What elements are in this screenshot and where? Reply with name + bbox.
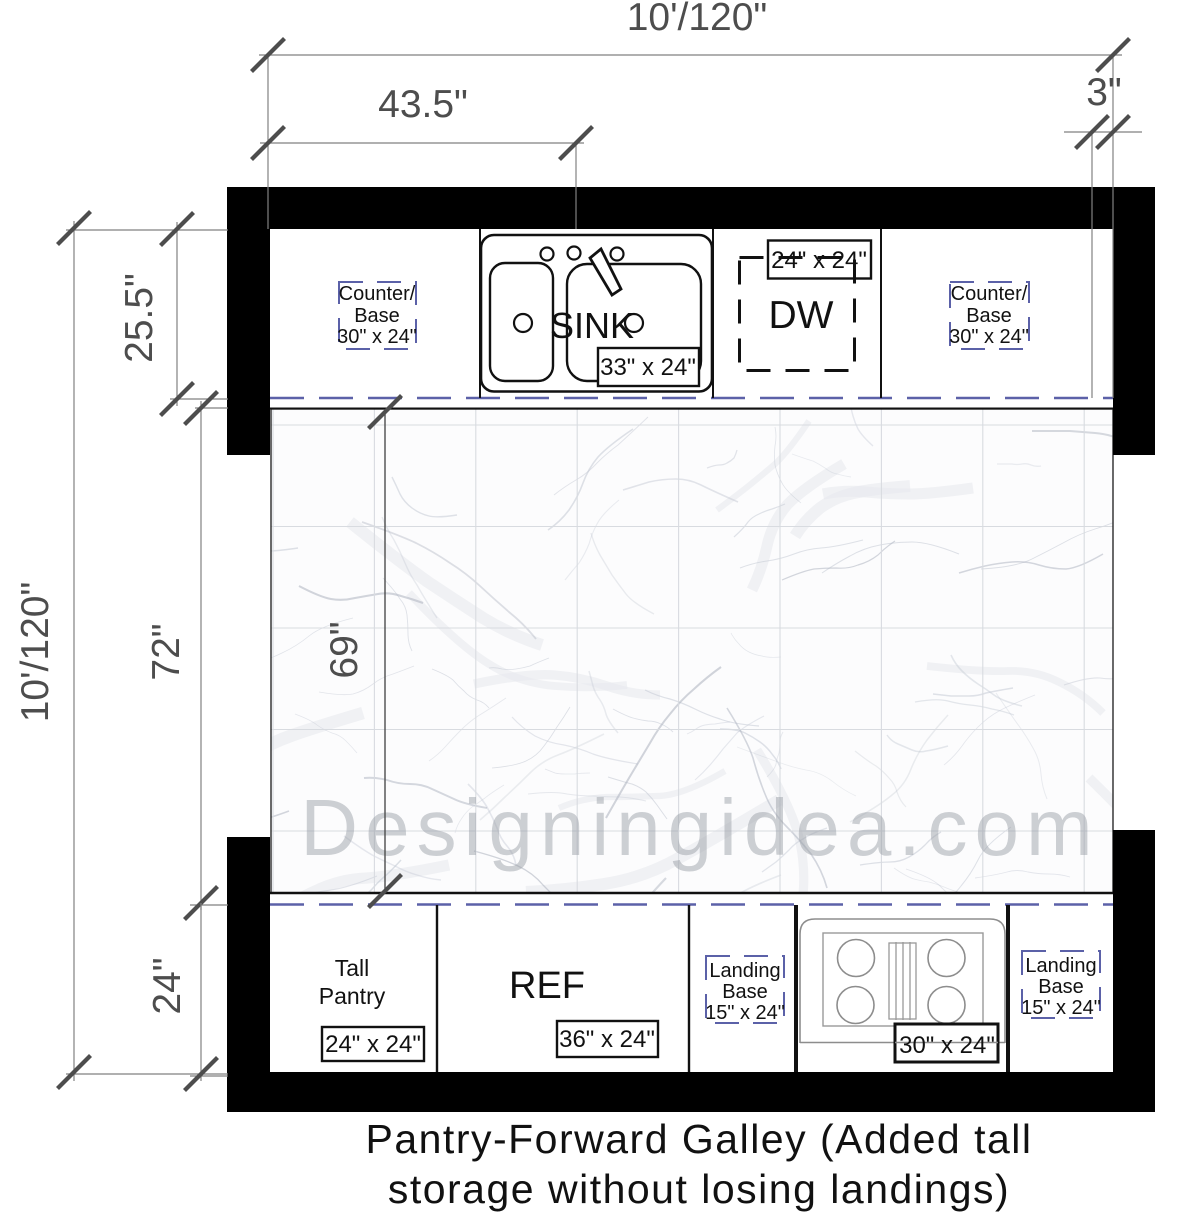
svg-text:25.5": 25.5" (118, 273, 161, 363)
svg-text:36" x 24": 36" x 24" (559, 1026, 655, 1053)
svg-text:69": 69" (323, 621, 366, 678)
svg-text:Landing: Landing (1025, 955, 1096, 977)
svg-text:30" x 24": 30" x 24" (337, 326, 417, 348)
svg-text:Base: Base (1038, 976, 1084, 998)
svg-text:storage without losing landing: storage without losing landings) (388, 1166, 1010, 1212)
svg-text:24" x 24": 24" x 24" (771, 247, 867, 274)
svg-text:24": 24" (146, 957, 189, 1014)
svg-text:Landing: Landing (709, 960, 780, 982)
svg-text:Counter/: Counter/ (951, 283, 1028, 305)
svg-text:10'/120": 10'/120" (627, 0, 768, 39)
svg-text:Base: Base (722, 981, 768, 1003)
svg-text:Base: Base (966, 305, 1012, 327)
svg-text:REF: REF (509, 965, 585, 1007)
svg-text:Pantry-Forward Galley (Added t: Pantry-Forward Galley (Added tall (365, 1116, 1032, 1162)
svg-text:Base: Base (354, 305, 400, 327)
svg-text:3": 3" (1086, 71, 1122, 114)
svg-text:43.5": 43.5" (378, 83, 468, 126)
svg-text:DW: DW (769, 294, 834, 337)
svg-text:Tall: Tall (335, 955, 370, 981)
svg-text:Designingidea.com: Designingidea.com (300, 783, 1099, 872)
svg-text:SINK: SINK (550, 305, 634, 346)
svg-text:Pantry: Pantry (319, 983, 386, 1009)
svg-text:30" x 24": 30" x 24" (899, 1032, 995, 1059)
svg-text:24" x 24": 24" x 24" (325, 1031, 421, 1058)
svg-text:15" x 24": 15" x 24" (1021, 997, 1101, 1019)
svg-text:72": 72" (145, 623, 188, 680)
svg-text:30" x 24": 30" x 24" (949, 326, 1029, 348)
svg-text:Counter/: Counter/ (339, 283, 416, 305)
svg-text:15" x 24": 15" x 24" (705, 1002, 785, 1024)
svg-text:10'/120": 10'/120" (14, 582, 57, 723)
svg-text:33" x 24": 33" x 24" (600, 354, 696, 381)
